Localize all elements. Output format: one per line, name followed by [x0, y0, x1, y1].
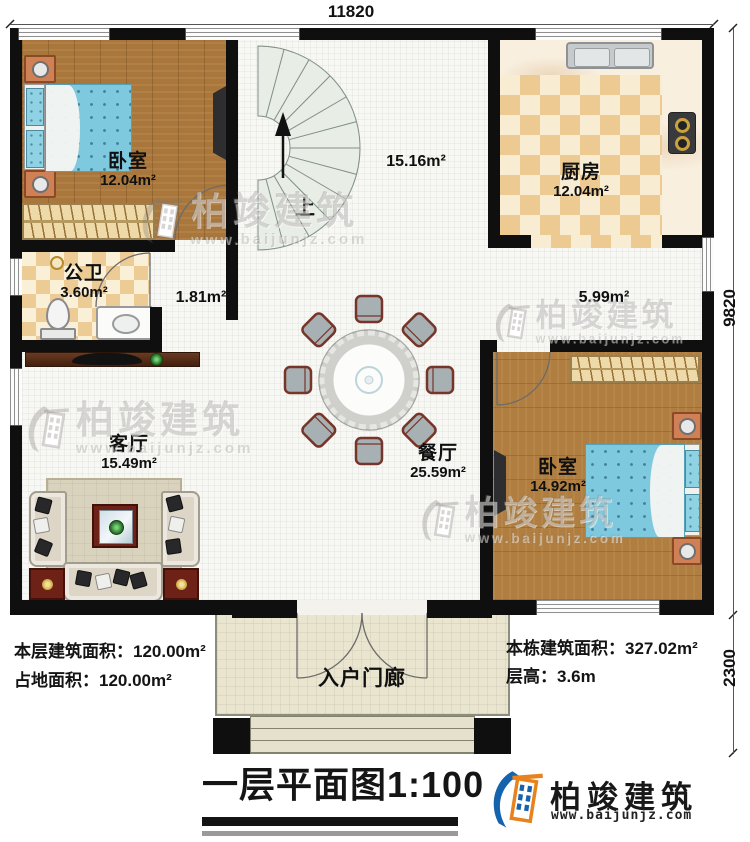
tv-bedroom1 [213, 86, 226, 160]
wall-bedroom1-south [10, 240, 175, 252]
flower-dot [176, 579, 187, 590]
nightstand [24, 170, 56, 198]
sofa-pillow [75, 570, 92, 587]
title-underline [202, 817, 458, 826]
plant-pot [150, 353, 163, 366]
wall-bathroom-south [10, 340, 162, 352]
brand-url: www.baijunjz.com [551, 808, 692, 823]
wall-kitchen-west [488, 40, 500, 235]
table-plant [109, 520, 124, 535]
room-name: 卧室 [530, 458, 586, 478]
stat-floor-area: 本层建筑面积：120.00m² [14, 637, 206, 662]
brand-logo-icon [488, 766, 544, 832]
window [536, 600, 660, 615]
kitchen-sink [566, 42, 654, 69]
dim-porch-right: 2300 [720, 646, 740, 690]
kitchen-threshold [531, 235, 662, 248]
stat-label: 本层建筑面积： [14, 642, 133, 661]
room-area: 3.60m² [60, 284, 108, 301]
stove-cooktop [668, 112, 696, 154]
room-area: 25.59m² [410, 464, 466, 481]
bed-mattress [585, 444, 685, 538]
nightstand [672, 412, 702, 440]
nightstand [672, 537, 702, 565]
room-name: 餐厅 [410, 444, 466, 464]
flower-dot [42, 579, 53, 590]
nightstand-knob [679, 418, 696, 435]
bed-sheet [650, 445, 684, 537]
sink-basin [112, 314, 140, 334]
room-label-kitchen: 厨房 12.04m² [553, 163, 609, 200]
wall-bedroom1-east [226, 40, 238, 238]
porch-column [213, 718, 250, 754]
porch-column [474, 718, 511, 754]
porch-steps [250, 716, 475, 754]
room-name: 公卫 [60, 264, 108, 284]
wall-right [702, 28, 714, 615]
sofa-pillow [165, 538, 182, 555]
window [185, 28, 300, 40]
room-name: 卧室 [100, 152, 156, 172]
bed-pillow [26, 130, 44, 168]
window [535, 28, 662, 40]
window [702, 237, 714, 292]
toilet-tank [40, 328, 76, 340]
plan-title-scale: 1:100 [387, 764, 484, 805]
area-label-stair-hall: 15.16m² [386, 153, 446, 171]
window [10, 368, 22, 426]
porch-floor [215, 613, 510, 716]
tv-bedroom2 [494, 450, 506, 516]
side-table [163, 568, 199, 600]
porch-column [232, 600, 297, 618]
wall-bedroom2-west [480, 352, 493, 600]
tv-living [72, 353, 142, 365]
burner [675, 118, 690, 133]
nightstand-knob [679, 543, 696, 560]
plan-title: 一层平面图1:100 [202, 756, 484, 808]
wall-left [10, 28, 22, 615]
plan-title-name: 一层平面图 [202, 764, 387, 805]
dim-line-top [10, 24, 714, 25]
bed-sheet [46, 85, 80, 171]
wardrobe-bedroom2 [570, 355, 700, 383]
room-label-dining: 餐厅 25.59m² [410, 444, 466, 481]
area-label-corridor: 5.99m² [579, 289, 630, 307]
kitchen-rug [500, 75, 662, 235]
room-name: 入户门廊 [318, 668, 406, 690]
room-area: 12.04m² [100, 172, 156, 189]
sofa-pillow [95, 573, 113, 591]
nightstand-knob [32, 176, 49, 193]
wall-kitchen-south-a [488, 235, 531, 248]
bed-pillow [26, 88, 44, 126]
room-area: 14.92m² [530, 478, 586, 495]
bed-pillow [685, 450, 700, 488]
bed-pillow [685, 494, 700, 532]
sink-basin [574, 48, 610, 67]
toilet-bowl [46, 298, 70, 330]
stat-value: 327.02m² [625, 639, 698, 658]
toilet [40, 298, 76, 340]
stat-label: 层高： [506, 667, 557, 686]
stat-label: 本栋建筑面积： [506, 639, 625, 658]
stat-storey-height: 层高：3.6m [506, 662, 596, 687]
room-label-porch: 入户门廊 [318, 668, 406, 690]
room-label-bedroom2: 卧室 14.92m² [530, 458, 586, 495]
nightstand-knob [32, 61, 49, 78]
vanity-sink [96, 306, 154, 340]
room-area: 12.04m² [553, 183, 609, 200]
wall-hall-west [226, 238, 238, 320]
room-name: 客厅 [101, 435, 157, 455]
side-table [29, 568, 65, 600]
stat-footprint: 占地面积：120.00m² [14, 666, 172, 691]
stat-value: 120.00m² [133, 642, 206, 661]
title-underline-shadow [202, 831, 458, 836]
floor-plan-page: 卧室 12.04m² 厨房 12.04m² 公卫 3.60m² 客厅 15.49… [0, 0, 750, 842]
room-area: 15.49m² [101, 455, 157, 472]
wall-bedroom2-north-b [550, 340, 714, 352]
dim-top: 11820 [311, 2, 391, 22]
room-label-living: 客厅 15.49m² [101, 435, 157, 472]
room-label-bathroom: 公卫 3.60m² [60, 264, 108, 301]
porch-column [427, 600, 492, 618]
sofa-pillow [33, 517, 50, 534]
room-name: 厨房 [553, 163, 609, 183]
window [10, 258, 22, 296]
room-label-bedroom1: 卧室 12.04m² [100, 152, 156, 189]
nightstand [24, 55, 56, 83]
bed-double [585, 444, 700, 536]
entry-threshold [297, 600, 427, 615]
stat-building-area: 本栋建筑面积：327.02m² [506, 634, 698, 659]
wall-bedroom2-north-a [480, 340, 497, 352]
dim-right: 9820 [720, 286, 740, 330]
stat-value: 120.00m² [99, 671, 172, 690]
stairs-up-label: 上 [295, 191, 315, 220]
coffee-table [92, 504, 138, 548]
stat-label: 占地面积： [14, 671, 99, 690]
sofa-pillow [168, 516, 186, 534]
window [18, 28, 110, 40]
wardrobe-bedroom1 [22, 203, 155, 240]
sink-basin [614, 48, 650, 67]
stat-value: 3.6m [557, 667, 596, 686]
area-label-hallway: 1.81m² [176, 289, 227, 307]
burner [675, 136, 690, 151]
